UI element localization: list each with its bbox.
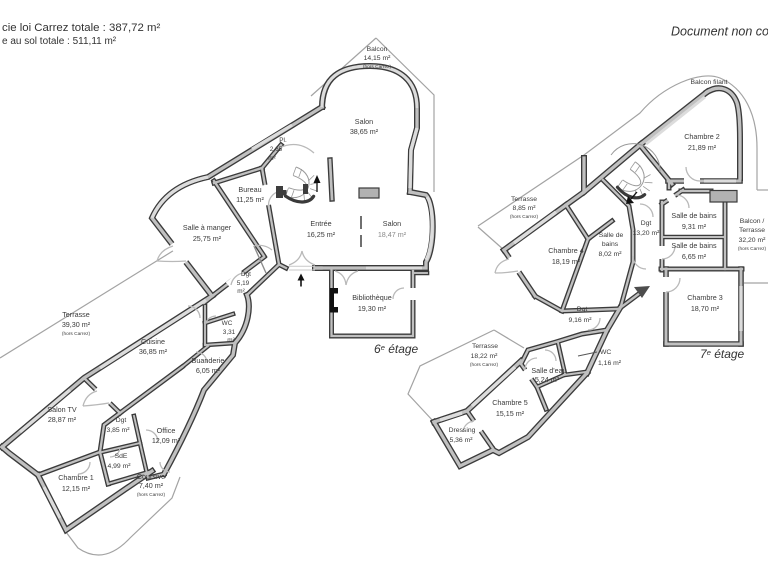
svg-text:Bureau: Bureau bbox=[238, 185, 261, 194]
svg-text:bains: bains bbox=[602, 241, 619, 248]
svg-text:Salle de bains: Salle de bains bbox=[671, 241, 717, 250]
svg-text:WC: WC bbox=[600, 349, 611, 356]
svg-text:SdE: SdE bbox=[115, 453, 128, 460]
svg-text:19,30 m²: 19,30 m² bbox=[358, 304, 387, 313]
svg-text:Terrasse: Terrasse bbox=[472, 343, 498, 350]
svg-text:25,75 m²: 25,75 m² bbox=[193, 234, 222, 243]
svg-text:3,31: 3,31 bbox=[223, 329, 236, 336]
svg-text:Salle de bains: Salle de bains bbox=[671, 211, 717, 220]
svg-text:(hors Carrez): (hors Carrez) bbox=[62, 331, 91, 337]
svg-text:2,65: 2,65 bbox=[270, 146, 283, 153]
svg-text:e au sol totale : 511,11 m²: e au sol totale : 511,11 m² bbox=[2, 36, 117, 47]
svg-text:Chambre 5: Chambre 5 bbox=[492, 398, 528, 407]
svg-text:Balcon: Balcon bbox=[367, 46, 388, 53]
svg-text:Office: Office bbox=[157, 426, 176, 435]
svg-text:m²: m² bbox=[237, 288, 244, 295]
svg-text:18,47 m²: 18,47 m² bbox=[378, 230, 407, 239]
svg-text:36,85 m²: 36,85 m² bbox=[139, 347, 168, 356]
svg-text:m²: m² bbox=[268, 155, 275, 162]
svg-text:5,24 m²: 5,24 m² bbox=[535, 375, 560, 384]
svg-text:18,70 m²: 18,70 m² bbox=[691, 304, 720, 313]
svg-text:(hors Carrez): (hors Carrez) bbox=[470, 362, 499, 368]
svg-text:5,19: 5,19 bbox=[237, 280, 250, 287]
svg-text:Pl.: Pl. bbox=[279, 137, 287, 144]
svg-text:38,65 m²: 38,65 m² bbox=[350, 127, 379, 136]
svg-text:15,15 m²: 15,15 m² bbox=[496, 409, 525, 418]
svg-text:Balcon /: Balcon / bbox=[740, 218, 765, 225]
svg-text:Dgt: Dgt bbox=[641, 220, 652, 227]
svg-text:12,15 m²: 12,15 m² bbox=[62, 484, 91, 493]
svg-text:Buanderie: Buanderie bbox=[192, 356, 225, 365]
svg-text:Entrée: Entrée bbox=[310, 219, 331, 228]
svg-text:28,87 m²: 28,87 m² bbox=[48, 415, 77, 424]
svg-text:Terrasse: Terrasse bbox=[511, 196, 537, 203]
svg-text:4,99 m²: 4,99 m² bbox=[107, 463, 131, 470]
svg-text:Dgt: Dgt bbox=[116, 417, 127, 424]
svg-text:m²: m² bbox=[227, 337, 234, 344]
svg-text:6e étage: 6e étage bbox=[374, 342, 419, 356]
svg-text:(hors Carrez): (hors Carrez) bbox=[738, 246, 767, 252]
svg-text:18,22 m²: 18,22 m² bbox=[471, 353, 499, 360]
svg-text:Dgt: Dgt bbox=[577, 306, 588, 313]
svg-text:Terrasse: Terrasse bbox=[739, 227, 765, 234]
svg-text:Chambre 4: Chambre 4 bbox=[548, 246, 584, 255]
svg-text:7,40 m²: 7,40 m² bbox=[139, 481, 164, 490]
svg-text:Document non contractuel: Document non contractuel bbox=[671, 25, 768, 39]
svg-text:9,31 m²: 9,31 m² bbox=[682, 222, 707, 231]
svg-text:16,25 m²: 16,25 m² bbox=[307, 230, 336, 239]
svg-text:Chambre 3: Chambre 3 bbox=[687, 293, 723, 302]
svg-text:6,65 m²: 6,65 m² bbox=[682, 252, 707, 261]
svg-text:Salon: Salon bbox=[383, 219, 401, 228]
svg-text:14,15 m²: 14,15 m² bbox=[364, 55, 392, 62]
svg-text:7e étage: 7e étage bbox=[700, 347, 745, 361]
svg-text:Bibliothèque: Bibliothèque bbox=[352, 293, 392, 302]
svg-text:18,19 m²: 18,19 m² bbox=[552, 257, 581, 266]
svg-text:cie loi Carrez totale : 387,7: cie loi Carrez totale : 387,72 m² bbox=[2, 22, 160, 34]
svg-text:39,30 m²: 39,30 m² bbox=[62, 320, 91, 329]
svg-text:Salle de: Salle de bbox=[599, 232, 624, 239]
svg-text:12,09 m²: 12,09 m² bbox=[152, 436, 181, 445]
svg-text:6,05 m²: 6,05 m² bbox=[196, 366, 221, 375]
svg-text:(hors Carrez): (hors Carrez) bbox=[363, 64, 392, 70]
svg-text:Salon TV: Salon TV bbox=[47, 405, 77, 414]
svg-text:Coursive: Coursive bbox=[137, 472, 165, 481]
svg-text:Chambre 1: Chambre 1 bbox=[58, 473, 94, 482]
svg-text:9,16 m²: 9,16 m² bbox=[568, 317, 592, 324]
svg-text:13,20 m²: 13,20 m² bbox=[633, 230, 661, 237]
svg-text:Dgt: Dgt bbox=[241, 271, 251, 278]
svg-text:(hors Carrez): (hors Carrez) bbox=[137, 492, 166, 498]
svg-text:8,85 m²: 8,85 m² bbox=[512, 205, 536, 212]
svg-text:3,85 m²: 3,85 m² bbox=[106, 427, 130, 434]
svg-text:Cuisine: Cuisine bbox=[141, 337, 165, 346]
svg-text:Dressing: Dressing bbox=[449, 427, 476, 434]
svg-text:8,02 m²: 8,02 m² bbox=[598, 251, 622, 258]
svg-text:(hors Carrez): (hors Carrez) bbox=[510, 214, 539, 220]
svg-text:5,36 m²: 5,36 m² bbox=[449, 437, 473, 444]
svg-text:Salle d'eau: Salle d'eau bbox=[531, 366, 566, 375]
svg-text:11,25 m²: 11,25 m² bbox=[236, 195, 264, 204]
svg-text:Chambre 2: Chambre 2 bbox=[684, 132, 720, 141]
svg-text:Balcon filant: Balcon filant bbox=[690, 79, 727, 86]
svg-text:Salle à manger: Salle à manger bbox=[183, 223, 232, 232]
svg-text:Terrasse: Terrasse bbox=[62, 310, 90, 319]
svg-text:32,20 m²: 32,20 m² bbox=[739, 237, 767, 244]
svg-text:WC: WC bbox=[222, 320, 233, 327]
svg-text:21,89 m²: 21,89 m² bbox=[688, 143, 717, 152]
svg-text:Salon: Salon bbox=[355, 117, 373, 126]
svg-text:1,16 m²: 1,16 m² bbox=[598, 360, 622, 367]
